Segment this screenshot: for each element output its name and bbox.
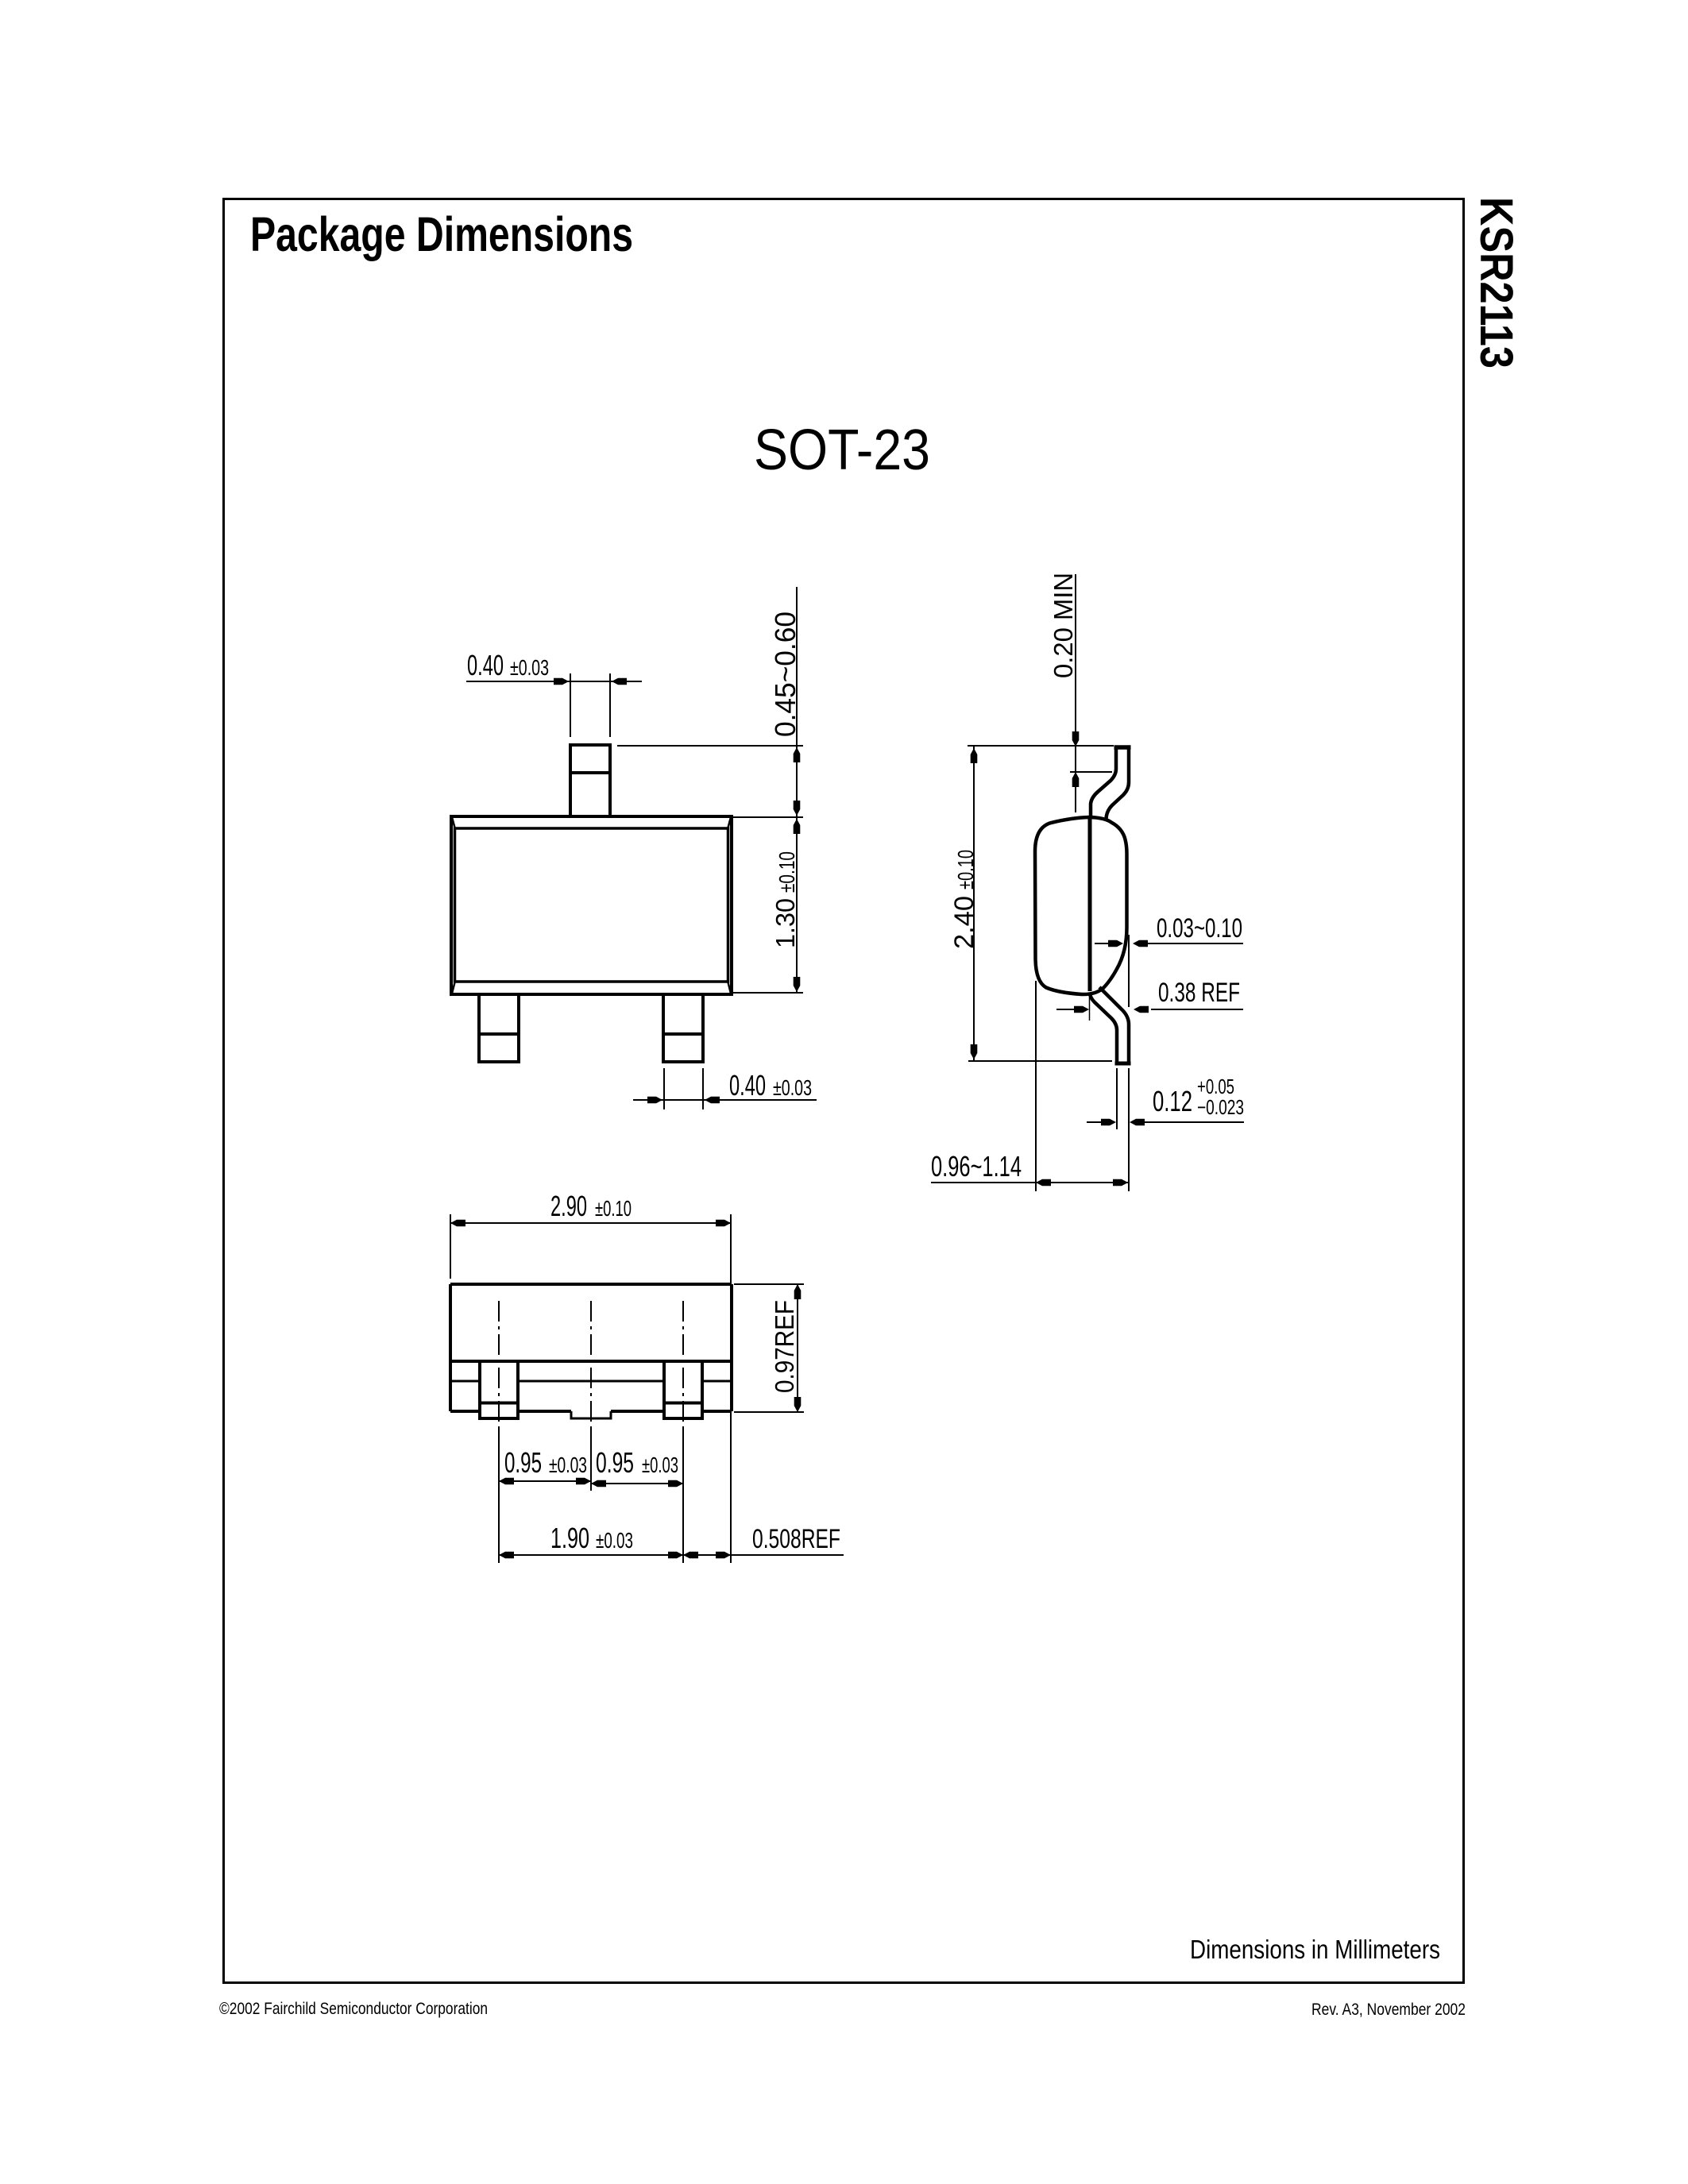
svg-text:±0.03: ±0.03 xyxy=(773,1075,812,1100)
svg-text:±0.03: ±0.03 xyxy=(549,1453,587,1477)
svg-text:0.03~0.10: 0.03~0.10 xyxy=(1157,913,1242,943)
svg-text:2.90: 2.90 xyxy=(550,1190,587,1222)
svg-text:Dimensions in Millimeters: Dimensions in Millimeters xyxy=(1190,1935,1440,1964)
svg-text:0.40: 0.40 xyxy=(467,649,504,681)
svg-text:1.30: 1.30 xyxy=(771,898,800,948)
svg-text:SOT-23: SOT-23 xyxy=(754,419,930,482)
svg-text:0.508REF: 0.508REF xyxy=(752,1524,840,1554)
svg-text:0.95: 0.95 xyxy=(504,1446,542,1479)
svg-text:2.40: 2.40 xyxy=(949,896,979,949)
svg-text:−0.023: −0.023 xyxy=(1197,1095,1244,1119)
svg-text:±0.03: ±0.03 xyxy=(510,655,549,680)
svg-text:±0.03: ±0.03 xyxy=(596,1528,633,1553)
svg-text:0.12: 0.12 xyxy=(1153,1085,1192,1117)
svg-text:KSR2113: KSR2113 xyxy=(1470,197,1522,369)
svg-text:0.97REF: 0.97REF xyxy=(770,1300,799,1393)
svg-text:±0.10: ±0.10 xyxy=(774,851,799,893)
svg-text:0.40: 0.40 xyxy=(729,1069,766,1102)
svg-text:±0.03: ±0.03 xyxy=(642,1453,678,1477)
svg-text:±0.10: ±0.10 xyxy=(595,1196,632,1221)
svg-text:0.95: 0.95 xyxy=(596,1446,634,1479)
svg-text:±0.10: ±0.10 xyxy=(953,850,978,889)
svg-text:Rev. A3, November 2002: Rev. A3, November 2002 xyxy=(1311,2001,1466,2019)
svg-text:0.45~0.60: 0.45~0.60 xyxy=(769,612,802,737)
svg-text:0.38 REF: 0.38 REF xyxy=(1158,978,1240,1008)
svg-text:0.20 MIN: 0.20 MIN xyxy=(1049,573,1078,678)
svg-text:©2002 Fairchild Semiconductor: ©2002 Fairchild Semiconductor Corporatio… xyxy=(219,2000,488,2018)
svg-text:0.96~1.14: 0.96~1.14 xyxy=(931,1150,1022,1183)
svg-text:1.90: 1.90 xyxy=(550,1522,589,1554)
svg-text:Package Dimensions: Package Dimensions xyxy=(250,207,633,261)
